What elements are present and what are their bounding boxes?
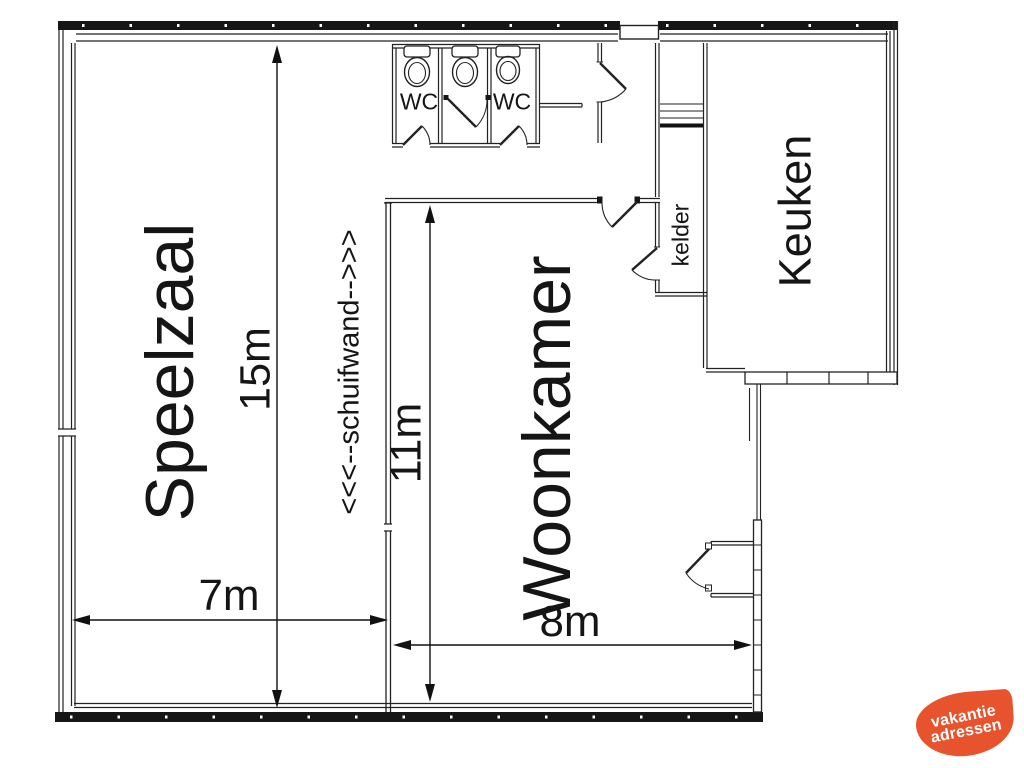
woonkamer-right-wall (750, 384, 762, 712)
toilet-icon (404, 46, 430, 87)
vakantieadressen-logo: vakantie adressen (902, 683, 1022, 765)
annotation-schuifwand: <<<--schuifwand-->>> (336, 229, 365, 514)
dimension-label-15m: 15m (235, 327, 278, 411)
front-door-sill (620, 26, 659, 40)
room-label-keuken: Keuken (773, 135, 818, 288)
room-label-kelder: kelder (670, 204, 693, 267)
floorplan-page: Speelzaal Woonkamer Keuken kelder WC WC … (0, 0, 1024, 768)
toilet-icon (452, 46, 478, 87)
door-swing-icon (686, 549, 709, 589)
dimension-label-7m: 7m (198, 574, 259, 618)
room-label-wc-right: WC (493, 91, 531, 114)
hall-room (540, 43, 626, 143)
closet-recess (686, 542, 754, 598)
toilet-icon (496, 46, 520, 84)
door-swing-icon (600, 63, 626, 102)
room-label-woonkamer: Woonkamer (513, 255, 581, 620)
stairs-icon (660, 104, 703, 126)
room-label-wc-left: WC (400, 91, 438, 114)
door-swing-icon (602, 202, 637, 227)
logo-text: vakantie adressen (927, 702, 1003, 746)
room-label-speelzaal: Speelzaal (136, 223, 204, 522)
keuken-window-wall (706, 369, 897, 385)
dimension-label-8m: 8m (539, 600, 600, 644)
dimension-label-11m: 11m (386, 403, 429, 483)
logo-blob: vakantie adressen (914, 689, 1016, 760)
door-swing-icon (632, 248, 657, 280)
